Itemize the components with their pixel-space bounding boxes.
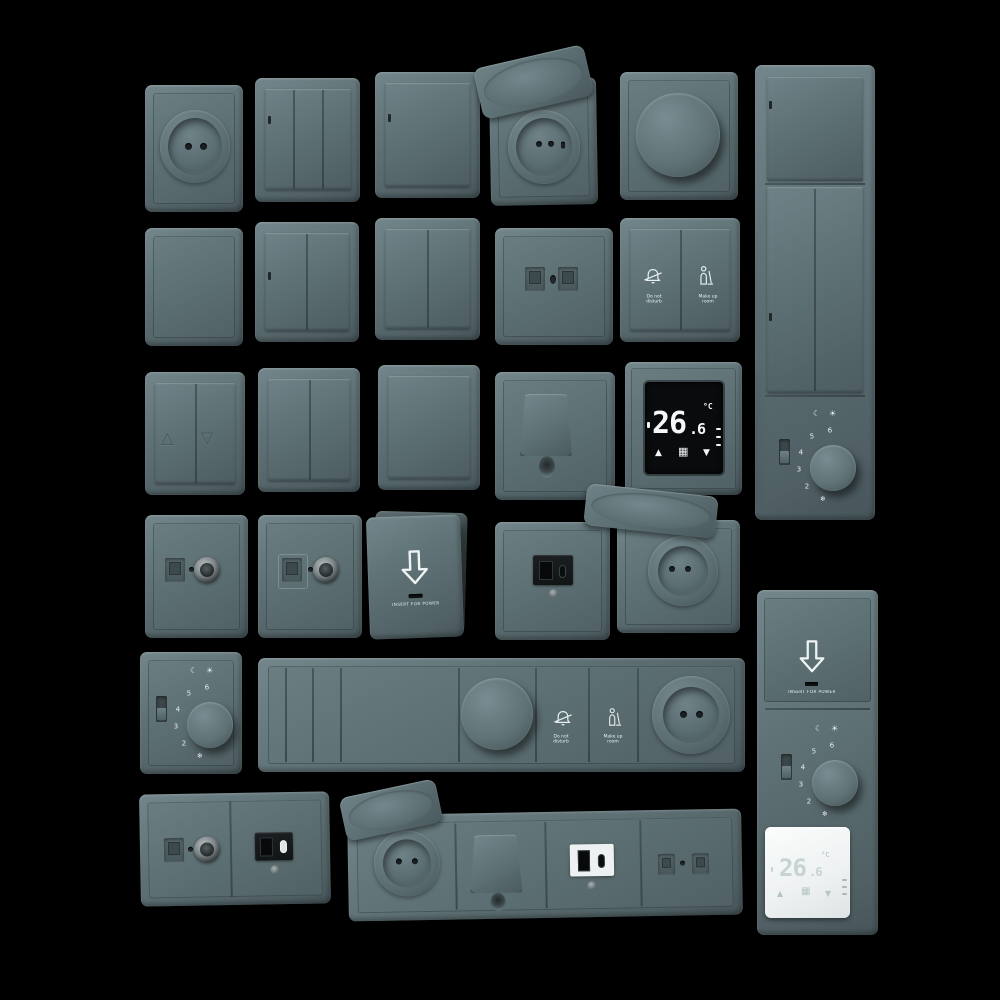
jack-opening <box>286 562 298 575</box>
toggle-switch <box>779 439 790 465</box>
socket-recess <box>663 687 719 743</box>
sun-icon: ☀ <box>831 724 838 734</box>
coax-center <box>200 563 214 577</box>
make-up-room-label: Make up room <box>688 294 728 304</box>
socket-recess <box>658 546 708 596</box>
dial-number-5: 5 <box>812 749 817 756</box>
lid-face <box>590 488 713 534</box>
dial-knob <box>187 702 233 748</box>
coax-center <box>319 563 333 577</box>
jack-opening <box>168 842 180 855</box>
socket-pin-hole <box>696 711 703 718</box>
unit-label: °C <box>821 851 829 859</box>
insert-for-power-label: INSERT FOR POWER <box>785 690 839 695</box>
cable-outlet-hood <box>520 394 572 456</box>
arrow-up-icon: ▲ <box>777 889 783 898</box>
screw <box>587 881 596 890</box>
rocker-divider <box>680 230 682 330</box>
usb-a-port <box>578 850 590 871</box>
tall-panel-card-dial-thermostat: INSERT FOR POWER ☾ ☀ 6 5 4 3 2 ❄ °C 26 .… <box>757 590 878 935</box>
rocker-divider <box>195 384 197 483</box>
dial-number-6: 6 <box>828 428 833 435</box>
tall-panel-switch-dial: ☾ ☀ 6 5 4 3 2 ❄ <box>755 65 875 520</box>
label-line: room <box>607 739 619 744</box>
do-not-disturb-label: Do not disturb <box>541 734 581 744</box>
shutter-down-icon: ▽ <box>201 428 213 447</box>
coax-center <box>200 842 214 856</box>
temperature-value: 26 <box>652 406 686 441</box>
socket-pin-hole <box>412 858 418 864</box>
snowflake-icon: ❄ <box>197 751 203 761</box>
dial-number-2: 2 <box>805 484 810 491</box>
shutter-switch-plate: △ ▽ <box>145 372 245 495</box>
screen-side-mark <box>716 436 721 438</box>
dial-number-5: 5 <box>187 691 192 698</box>
dimmer-plate <box>620 72 738 200</box>
dial-number-2: 2 <box>807 799 812 806</box>
dial-number-3: 3 <box>799 782 804 789</box>
make-up-room-icon <box>605 706 622 729</box>
usb-module-white <box>570 844 615 877</box>
screen-side-mark <box>771 867 773 872</box>
jack-opening <box>562 271 574 284</box>
usb-module <box>255 832 293 861</box>
screen-side-mark <box>647 422 650 428</box>
dial-knob <box>810 445 856 491</box>
moon-icon: ☾ <box>813 409 820 419</box>
cable-outlet-hood <box>469 834 522 893</box>
network-jack <box>282 558 302 582</box>
rocker-divider <box>814 189 816 391</box>
moon-icon: ☾ <box>190 666 197 676</box>
render-canvas: ☾ ☀ 6 5 4 3 2 ❄ <box>0 0 1000 1000</box>
rocker-divider <box>309 380 311 480</box>
tv-data-socket-plate <box>145 515 248 638</box>
make-up-room-icon <box>696 264 714 288</box>
screen-side-mark <box>716 428 721 430</box>
dial-number-3: 3 <box>797 467 802 474</box>
arrow-up-icon: ▲ <box>655 448 662 458</box>
usb-c-port <box>280 840 287 853</box>
indicator-slot <box>388 114 391 122</box>
menu-grid-icon: ▦ <box>678 445 688 458</box>
usb-a-port <box>260 837 273 856</box>
thermostat-dial-section: ☾ ☀ 6 5 4 3 2 ❄ <box>765 397 865 515</box>
temperature-value: 26 <box>779 854 806 882</box>
tv-data-socket-plate <box>258 515 362 638</box>
label-line: disturb <box>646 299 662 304</box>
coax-connector <box>194 557 220 583</box>
side-button-mark <box>842 879 847 881</box>
dial-number-4: 4 <box>799 450 804 457</box>
rocker-divider <box>306 234 308 330</box>
card-slot <box>805 682 818 686</box>
menu-grid-icon: ▦ <box>801 886 810 897</box>
network-jack <box>165 558 185 582</box>
section-divider <box>765 183 865 185</box>
arrow-down-icon: ▼ <box>825 889 831 898</box>
network-jack <box>164 838 184 862</box>
section-divider <box>588 668 590 762</box>
network-jack <box>692 853 709 874</box>
dial-number-3: 3 <box>174 724 179 731</box>
cable-outlet-plate <box>495 372 615 500</box>
multigang-strip-plate: Do not disturb Make up room <box>258 658 745 772</box>
usb-module <box>533 555 573 585</box>
moon-icon: ☾ <box>815 724 822 734</box>
coax-connector <box>313 557 339 583</box>
dial-knob <box>812 760 858 806</box>
screw <box>270 865 279 874</box>
switch-2gang-plate <box>258 368 360 492</box>
section-divider <box>637 668 639 762</box>
tv-data-usb-double-plate <box>139 791 331 906</box>
socket-plate-round <box>145 85 243 212</box>
socket-recess <box>168 118 222 175</box>
usb-socket-plate <box>495 522 610 640</box>
network-jack <box>658 854 675 875</box>
switch-1gang-plate <box>378 365 480 490</box>
dial-number-5: 5 <box>810 434 815 441</box>
socket-side-slot <box>561 142 565 149</box>
make-up-room-label: Make up room <box>593 734 633 744</box>
switch-2gang-plate <box>375 218 480 340</box>
shutter-up-icon: △ <box>161 428 173 447</box>
socket-pin-hole <box>680 711 687 718</box>
cord-exit-hole <box>539 456 555 478</box>
insert-card-arrow-icon <box>396 547 433 588</box>
rocker-divider <box>322 90 324 189</box>
side-button-mark <box>842 893 847 895</box>
dial-number-2: 2 <box>182 741 187 748</box>
socket-pin-hole <box>396 858 402 864</box>
card-slot <box>409 594 423 598</box>
side-button-mark <box>842 886 847 888</box>
insert-card-arrow-icon <box>795 638 829 676</box>
socket-pin-hole <box>669 566 675 572</box>
dial-number-6: 6 <box>830 743 835 750</box>
network-jack <box>525 267 545 291</box>
thermostat-screen: °C 26 .6 ▲ ▦ ▼ <box>645 382 723 474</box>
toggle-knob <box>782 766 791 778</box>
dimmer-knob <box>636 93 720 177</box>
plate-face <box>503 236 605 337</box>
indicator-dot <box>188 847 193 852</box>
usb-c-port <box>598 854 605 868</box>
dial-number-4: 4 <box>176 707 181 714</box>
section-divider <box>535 668 537 762</box>
dimmer-knob <box>461 678 533 750</box>
thermostat-dial-section: ☾ ☀ 6 5 4 3 2 ❄ <box>142 654 242 772</box>
dial-number-6: 6 <box>205 685 210 692</box>
screen-side-mark <box>716 444 721 446</box>
do-not-disturb-icon <box>552 708 574 728</box>
socket-pin-hole <box>200 143 207 150</box>
do-not-disturb-label: Do not disturb <box>634 294 674 304</box>
usb-c-port <box>559 565 566 578</box>
label-line: disturb <box>553 739 569 744</box>
toggle-knob <box>157 708 166 720</box>
indicator-slot <box>769 313 772 321</box>
indicator-slot <box>268 116 271 124</box>
card-switch-plate: INSERT FOR POWER <box>366 514 464 639</box>
toggle-knob <box>780 451 789 463</box>
hotel-service-switch-plate: Do not disturb Make up room <box>620 218 740 342</box>
switch-3gang-plate <box>255 78 360 202</box>
rocker <box>385 83 470 187</box>
sun-icon: ☀ <box>206 666 213 676</box>
section-divider <box>340 668 342 762</box>
jack-opening <box>662 858 671 868</box>
do-not-disturb-icon <box>642 266 664 286</box>
plate-face <box>153 236 235 338</box>
indicator-slot <box>769 101 772 109</box>
indicator-dot <box>680 861 685 866</box>
switch-1gang-plate <box>375 72 480 198</box>
rocker-divider <box>427 230 429 328</box>
label-line: room <box>702 299 714 304</box>
rocker <box>388 376 470 479</box>
sun-icon: ☀ <box>829 409 836 419</box>
blank-plate <box>145 228 243 346</box>
usb-a-port <box>539 561 553 580</box>
section-divider <box>765 708 870 710</box>
section-divider <box>312 668 314 762</box>
rocker <box>265 89 351 190</box>
socket-pin-hole <box>536 141 542 147</box>
snowflake-icon: ❄ <box>822 809 828 819</box>
rocker-divider <box>293 90 295 189</box>
socket-plate-flip-lid <box>617 520 740 633</box>
snowflake-icon: ❄ <box>820 494 826 504</box>
thermostat-dial-section: ☾ ☀ 6 5 4 3 2 ❄ <box>767 712 867 830</box>
network-jack <box>558 267 578 291</box>
socket-pin-hole <box>185 143 192 150</box>
temperature-decimal: .6 <box>689 420 705 438</box>
jack-opening <box>169 562 181 575</box>
arrow-down-icon: ▼ <box>703 448 710 458</box>
section-divider <box>458 668 460 762</box>
unit-label: °C <box>703 402 713 411</box>
data-socket-double-plate <box>495 228 613 345</box>
screw <box>549 589 558 598</box>
section-divider <box>285 668 287 762</box>
socket-pin-hole <box>548 141 554 147</box>
jack-opening <box>696 857 705 867</box>
dial-number-4: 4 <box>801 765 806 772</box>
label-window <box>550 275 556 284</box>
switch-2gang-plate <box>255 222 359 342</box>
temperature-decimal: .6 <box>809 865 821 879</box>
toggle-switch <box>781 754 792 780</box>
rocker <box>767 77 863 181</box>
jack-opening <box>529 271 541 284</box>
indicator-slot <box>268 272 271 280</box>
insert-for-power-label: INSERT FOR POWER <box>389 601 443 607</box>
socket-pin-hole <box>685 566 691 572</box>
thermostat-digital-white: °C 26 .6 ▲ ▦ ▼ <box>765 827 850 918</box>
thermostat-dial-plate: ☾ ☀ 6 5 4 3 2 ❄ <box>140 652 242 774</box>
toggle-switch <box>156 696 167 722</box>
thermostat-digital-black: °C 26 .6 ▲ ▦ ▼ <box>625 362 742 495</box>
